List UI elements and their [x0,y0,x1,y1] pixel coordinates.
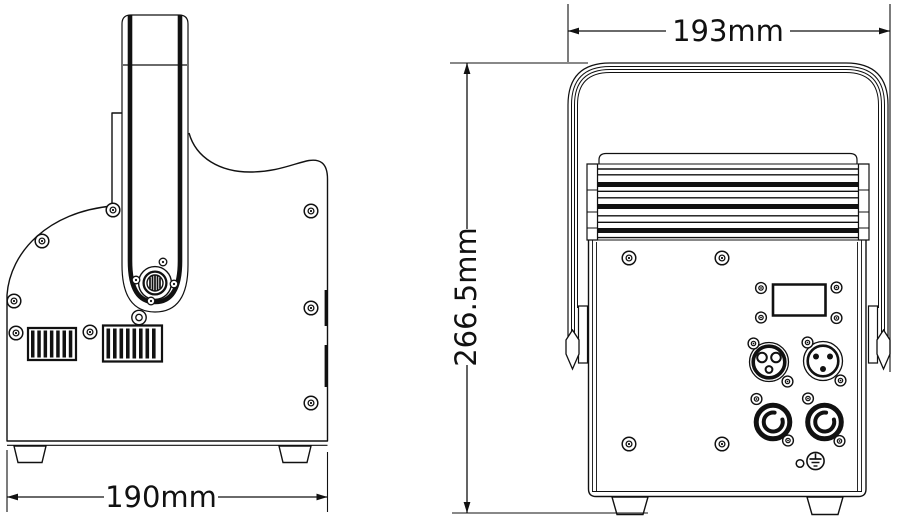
screw-icon [147,297,155,305]
screw-icon [834,436,845,447]
screw-icon [106,203,120,217]
screw-icon [304,396,318,410]
screw-icon [782,376,793,387]
screw-icon [835,375,846,386]
screw-icon [622,251,636,265]
screw-icon [304,301,318,315]
screw-icon [83,325,97,339]
screw-icon [159,258,167,266]
screw-icon [802,337,813,348]
heatsink-cap [599,154,857,165]
screw-icon [35,234,49,248]
dimension-label-side-width: 190mm [104,482,218,512]
rubber-foot [807,497,843,515]
screw-icon [756,312,767,323]
bracket-slide-bar-left [579,306,588,363]
screw-icon [783,435,794,446]
arrowhead-left [568,28,579,35]
arrowhead-right [879,28,890,35]
rubber-foot [14,446,46,463]
screw-icon [756,283,767,294]
yoke-pivot [132,310,146,324]
arrowhead-up [464,63,471,74]
vent-grille-right [103,326,162,362]
bracket-knob-right [877,330,890,369]
screw-icon [132,276,140,284]
technical-drawing-canvas: 190mm 193mm 266.5mm [0,0,898,531]
screw-icon [751,394,762,405]
rear-feet [612,497,843,515]
screw-icon [715,251,729,265]
arrowhead-left [7,494,18,501]
bracket-slide-bar-right [869,306,878,363]
screw-icon [831,313,842,324]
rear-view [450,4,890,515]
screw-icon [170,280,178,288]
bracket-knob-left [566,330,579,369]
side-feet [14,446,311,463]
arrowhead-right [317,494,328,501]
screw-icon [7,294,21,308]
heatsink [587,154,869,241]
side-view [7,15,328,512]
dimension-label-rear-width: 193mm [671,16,785,46]
display-window [773,285,826,316]
arrowhead-down [464,502,471,513]
screw-icon [715,437,729,451]
screw-icon [304,204,318,218]
dimension-label-rear-height: 266.5mm [451,227,481,367]
rubber-foot [279,446,311,463]
indicator-hole [796,460,804,468]
vent-grille-left [28,328,76,360]
screw-icon [622,437,636,451]
screw-icon [9,326,23,340]
rubber-foot [612,497,648,515]
screw-icon [831,282,842,293]
screw-icon [748,338,759,349]
screw-icon [803,393,814,404]
